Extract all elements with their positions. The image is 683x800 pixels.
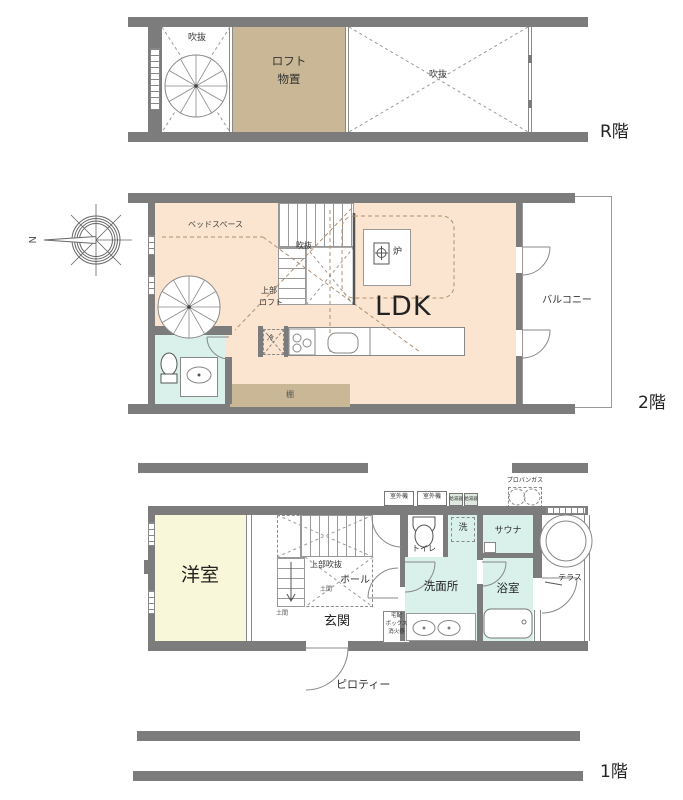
roof-right-wall-post-1 bbox=[528, 55, 532, 63]
upper-void-label: 上部吹抜 bbox=[310, 560, 342, 569]
balcony-door-gap-1 bbox=[516, 247, 522, 273]
pilotis-label: ピロティー bbox=[336, 679, 390, 692]
f2-right-wall bbox=[516, 203, 522, 404]
f2-toilet-left-wall bbox=[148, 335, 155, 404]
f1-floor-label: 1階 bbox=[600, 763, 628, 783]
roof-void-right-label: 吹抜 bbox=[408, 70, 468, 80]
roof-right-wall-post-2 bbox=[528, 100, 532, 108]
sauna-label: サウナ bbox=[483, 526, 533, 536]
washroom-label: 洗面所 bbox=[407, 580, 475, 593]
f2-stair-void-label: 吹抜 bbox=[296, 241, 312, 250]
doma-label-2: 土間 bbox=[276, 611, 288, 618]
hall-label: ホール bbox=[340, 575, 370, 587]
roof-floor-label: R階 bbox=[600, 123, 629, 143]
ldk-label: LDK bbox=[375, 291, 432, 322]
doma-label-1: 土間 bbox=[320, 587, 332, 594]
terrace-top-window bbox=[546, 507, 586, 514]
f2-vanity bbox=[180, 357, 218, 397]
washroom-sink-counter bbox=[406, 613, 476, 641]
roof-right-wall bbox=[528, 27, 532, 132]
laundry-label: 洗 bbox=[451, 523, 475, 533]
hearth-label: 炉 bbox=[393, 247, 402, 257]
entrance-door-gap bbox=[306, 641, 348, 651]
f1-site-wall-left bbox=[138, 463, 368, 473]
f2-left-wall bbox=[148, 203, 155, 335]
washroom-left-wall-upper bbox=[400, 557, 405, 587]
upper-loft-label-1: 上部 bbox=[261, 286, 277, 295]
delivery-label-1: 宅配 bbox=[383, 613, 410, 619]
fridge-wall-right bbox=[284, 326, 288, 357]
delivery-label-2: ボックス bbox=[383, 621, 410, 627]
f1-toilet-fixture bbox=[413, 517, 435, 547]
bed-space-label: ベッドスペース bbox=[188, 220, 243, 229]
bathroom-label: 浴室 bbox=[483, 582, 533, 595]
f2-floor-label: 2階 bbox=[638, 394, 666, 414]
roof-loft-label-2: 物置 bbox=[254, 73, 324, 86]
toilet-label: トイレ bbox=[404, 544, 444, 553]
roof-loft-label-1: ロフト bbox=[254, 55, 324, 68]
hearth-island bbox=[363, 229, 411, 286]
propane-box bbox=[508, 487, 542, 508]
f1-stairs-lower-flight bbox=[277, 557, 305, 607]
f2-stairs-lower-flight bbox=[278, 247, 306, 305]
upper-loft-label-2: ロフト bbox=[259, 298, 283, 307]
delivery-label-3: 消火器 bbox=[383, 629, 410, 635]
roof-left-window bbox=[150, 48, 160, 110]
compass-rose bbox=[44, 204, 132, 276]
roof-bottom-slab bbox=[128, 132, 588, 142]
f2-left-window-1 bbox=[148, 235, 155, 255]
terrace-label: テラス bbox=[548, 573, 592, 582]
roof-top-slab bbox=[128, 17, 588, 27]
f2-top-wall-slab bbox=[128, 193, 575, 203]
floor-plan-canvas: 吹抜 ロフト 物置 吹抜 R階 N ベッドスペース 吹抜 炉 LDK 上部 ロフ… bbox=[0, 0, 683, 800]
site-boundary-bar-2 bbox=[133, 771, 583, 781]
propane-label: プロパンガス bbox=[500, 478, 550, 485]
f1-site-wall-right bbox=[512, 463, 588, 473]
compass-north-label: N bbox=[28, 236, 40, 243]
bath-window bbox=[534, 610, 541, 641]
f1-stairs-upper-flight bbox=[300, 515, 373, 557]
entrance-label: 玄関 bbox=[324, 615, 350, 630]
balcony-door-gap-2 bbox=[516, 330, 522, 356]
f2-bottom-wall-slab bbox=[128, 404, 575, 414]
kitchen-counter bbox=[288, 327, 465, 356]
site-boundary-bar-1 bbox=[137, 731, 580, 741]
bathroom bbox=[483, 558, 533, 641]
water-heater-1-label: 給湯器 bbox=[449, 497, 463, 502]
western-room-sliding-door bbox=[246, 515, 252, 641]
f2-toilet-right-wall bbox=[225, 357, 232, 404]
f1-bottom-wall bbox=[148, 641, 588, 651]
western-room-label: 洋室 bbox=[160, 565, 240, 587]
f2-stairs-upper-flight bbox=[278, 203, 354, 247]
f1-left-window-1 bbox=[148, 522, 155, 546]
roof-spiral-stair bbox=[165, 55, 227, 117]
f1-top-wall bbox=[148, 506, 588, 515]
f1-left-wall-pier bbox=[144, 560, 149, 574]
outdoor-unit-1-label: 室外機 bbox=[384, 494, 414, 501]
fridge-label: 冷 bbox=[267, 334, 274, 342]
roof-void-left-label: 吹抜 bbox=[172, 33, 222, 43]
roof-wall-2 bbox=[345, 27, 349, 132]
f2-stair-void bbox=[306, 247, 354, 305]
outdoor-unit-2-label: 室外機 bbox=[417, 494, 447, 501]
f2-toilet-top-wall bbox=[148, 326, 232, 335]
bath-terrace-wall-mid bbox=[533, 553, 542, 578]
balcony-label: バルコニー bbox=[532, 295, 602, 307]
water-heater-2-label: 給湯器 bbox=[464, 497, 478, 502]
f1-left-window-2 bbox=[148, 590, 155, 614]
sauna-step bbox=[484, 542, 496, 553]
shelf-label: 棚 bbox=[270, 390, 310, 399]
f2-left-window-2 bbox=[148, 275, 155, 295]
